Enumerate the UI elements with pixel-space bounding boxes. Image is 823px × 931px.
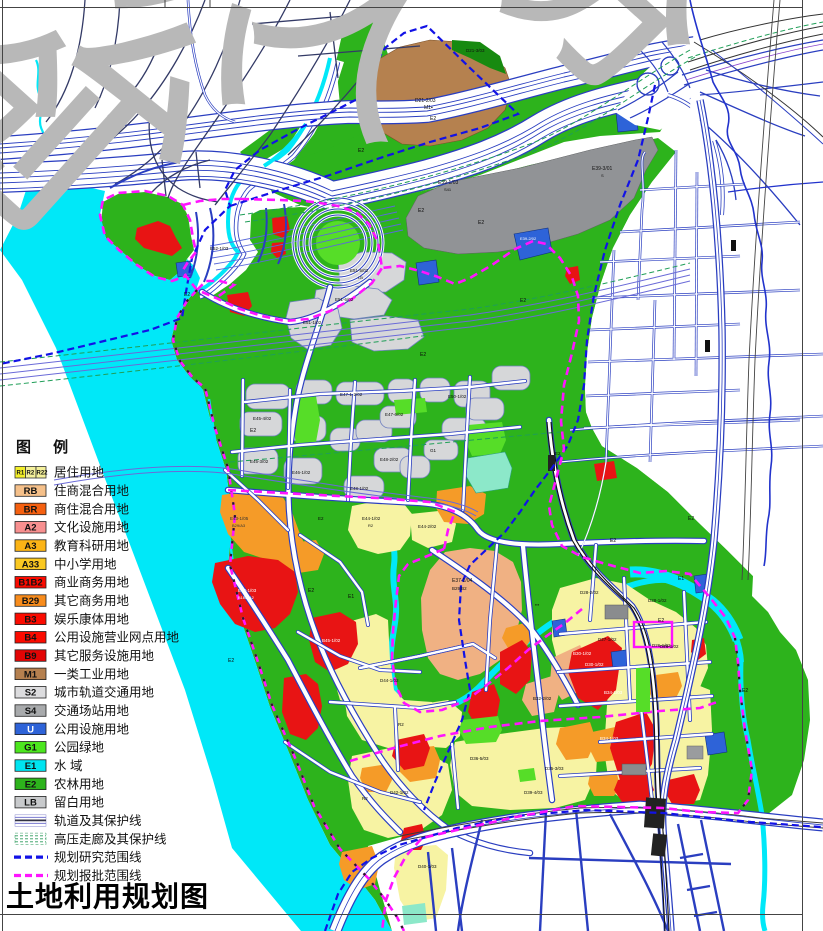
svg-text:E2: E2	[420, 352, 426, 358]
svg-text:S4: S4	[25, 706, 37, 717]
svg-text:教育科研用地: 教育科研用地	[54, 538, 130, 553]
svg-text:高压走廊及其保护线: 高压走廊及其保护线	[54, 831, 167, 846]
svg-text:E46-1/02: E46-1/02	[292, 470, 311, 475]
svg-text:M1: M1	[24, 669, 38, 680]
svg-text:RB: RB	[24, 486, 38, 497]
svg-text:B29|B2: B29|B2	[452, 586, 467, 591]
svg-text:E43-1/05: E43-1/05	[230, 516, 249, 521]
svg-text:E2: E2	[418, 208, 424, 214]
svg-text:E2: E2	[478, 220, 484, 226]
svg-text:E48-2/02: E48-2/02	[380, 457, 399, 462]
svg-text:D44-1/02: D44-1/02	[380, 678, 399, 683]
svg-text:R2: R2	[27, 471, 35, 477]
svg-text:D30-1/02: D30-1/02	[585, 662, 604, 667]
svg-text:居住用地: 居住用地	[54, 466, 105, 480]
svg-text:E52-1/03: E52-1/03	[210, 246, 229, 251]
svg-text:M1▪: M1▪	[424, 105, 433, 111]
svg-text:G1: G1	[24, 743, 37, 754]
svg-text:A2: A2	[24, 523, 36, 534]
svg-text:城市轨道交通用地: 城市轨道交通用地	[54, 685, 155, 700]
svg-text:E1: E1	[348, 594, 354, 600]
svg-text:E2: E2	[688, 516, 694, 522]
svg-text:图 例: 图 例	[16, 438, 77, 456]
svg-text:E44-1/02: E44-1/02	[362, 516, 381, 521]
svg-text:E2: E2	[555, 451, 561, 456]
svg-text:A3: A3	[24, 541, 36, 552]
svg-text:E51-6/02: E51-6/02	[335, 297, 354, 302]
svg-text:D28-2/02: D28-2/02	[580, 590, 599, 595]
svg-text:U: U	[27, 724, 34, 735]
svg-text:D40-1/03: D40-1/03	[418, 864, 437, 869]
svg-text:E47-1-2/02: E47-1-2/02	[340, 392, 363, 397]
svg-text:E48-1/02: E48-1/02	[350, 486, 369, 491]
svg-text:B29/A3: B29/A3	[232, 523, 246, 528]
svg-text:D39-4/03: D39-4/03	[524, 790, 543, 795]
svg-text:公用设施营业网点用地: 公用设施营业网点用地	[54, 630, 180, 645]
svg-text:一类工业用地: 一类工业用地	[54, 667, 130, 681]
svg-text:D21-3/03: D21-3/03	[466, 48, 485, 53]
svg-text:S41: S41	[444, 187, 452, 192]
svg-text:水 域: 水 域	[54, 759, 82, 773]
svg-text:E2: E2	[318, 516, 324, 521]
svg-text:文化设施用地: 文化设施用地	[54, 520, 130, 535]
svg-text:住商混合用地: 住商混合用地	[54, 483, 130, 498]
svg-text:B30-1/02: B30-1/02	[573, 651, 592, 656]
svg-text:S: S	[601, 173, 604, 178]
svg-text:R1: R1	[17, 471, 25, 477]
svg-text:E2: E2	[184, 292, 190, 298]
svg-text:E2: E2	[520, 298, 526, 304]
svg-text:D21-2/03: D21-2/03	[415, 98, 436, 104]
svg-text:E39-1/03: E39-1/03	[438, 180, 459, 186]
svg-text:R22: R22	[37, 471, 49, 477]
svg-text:公园绿地: 公园绿地	[54, 740, 105, 755]
svg-text:D27-1/02: D27-1/02	[598, 637, 617, 642]
svg-text:E1: E1	[678, 576, 684, 582]
svg-text:E45-4/02: E45-4/02	[253, 416, 272, 421]
svg-text:E50-1/02: E50-1/02	[448, 394, 467, 399]
svg-text:E2: E2	[308, 588, 314, 594]
svg-text:D42-1/02: D42-1/02	[390, 790, 409, 795]
svg-text:BR: BR	[24, 504, 38, 515]
svg-text:其它商务用地: 其它商务用地	[54, 593, 130, 608]
svg-text:留白用地: 留白用地	[54, 795, 105, 810]
svg-text:土地利用规划图: 土地利用规划图	[6, 881, 209, 912]
svg-text:E51-5/02: E51-5/02	[350, 268, 369, 273]
svg-text:LB: LB	[24, 798, 37, 809]
svg-text:E2: E2	[742, 688, 748, 694]
svg-text:交通场站用地: 交通场站用地	[54, 703, 130, 718]
svg-text:B9: B9	[24, 651, 36, 662]
svg-text:B29: B29	[22, 596, 39, 607]
svg-text:B32-2/02: B32-2/02	[533, 696, 552, 701]
svg-text:E2: E2	[228, 658, 234, 664]
svg-text:E2: E2	[610, 538, 616, 544]
svg-text:A33: A33	[22, 559, 39, 570]
svg-text:E2: E2	[358, 148, 364, 154]
svg-text:轨道及其保护线: 轨道及其保护线	[54, 814, 142, 828]
svg-text:D36-5/03: D36-5/03	[470, 756, 489, 761]
svg-text:R2: R2	[368, 523, 374, 528]
svg-text:R2: R2	[362, 796, 368, 801]
svg-text:E37-1/04: E37-1/04	[452, 578, 473, 584]
svg-text:娱乐康体用地: 娱乐康体用地	[54, 611, 130, 626]
svg-text:E39-3/01: E39-3/01	[592, 166, 613, 172]
svg-text:B34-1/03: B34-1/03	[600, 736, 619, 741]
svg-text:R2: R2	[398, 722, 404, 727]
svg-text:B3: B3	[24, 614, 36, 625]
svg-text:S2: S2	[25, 688, 37, 699]
svg-text:商业商务用地: 商业商务用地	[54, 575, 130, 590]
svg-text:▪▪▪: ▪▪▪	[535, 602, 540, 607]
svg-text:E44-2/02: E44-2/02	[418, 524, 437, 529]
svg-text:D26-1/02: D26-1/02	[660, 644, 679, 649]
svg-text:公用设施用地: 公用设施用地	[54, 721, 130, 736]
svg-text:规划研究范围线: 规划研究范围线	[54, 850, 142, 865]
svg-text:E2: E2	[430, 116, 436, 122]
svg-text:G1: G1	[430, 448, 437, 453]
svg-text:B34-1/03: B34-1/03	[604, 690, 623, 695]
svg-text:农林用地: 农林用地	[54, 777, 105, 791]
svg-text:B4: B4	[24, 633, 37, 644]
svg-text:B1B2/A2: B1B2/A2	[238, 595, 255, 600]
svg-text:E2: E2	[25, 779, 37, 790]
svg-text:B1B2: B1B2	[18, 578, 42, 589]
svg-text:其它服务设施用地: 其它服务设施用地	[54, 648, 155, 663]
svg-text:E43-1/03: E43-1/03	[238, 588, 257, 593]
svg-text:E51-1/02: E51-1/02	[303, 320, 322, 325]
svg-text:E2: E2	[658, 618, 664, 624]
svg-text:E2: E2	[250, 428, 256, 434]
svg-text:E45-3/02: E45-3/02	[250, 459, 269, 464]
svg-text:E1: E1	[25, 761, 37, 772]
svg-text:D28-1/02: D28-1/02	[648, 598, 667, 603]
svg-text:E39-2/02: E39-2/02	[520, 236, 537, 241]
svg-text:LB: LB	[358, 275, 363, 280]
svg-text:E47-6/02: E47-6/02	[385, 412, 404, 417]
svg-text:B45-1/02: B45-1/02	[322, 638, 341, 643]
svg-text:商住混合用地: 商住混合用地	[54, 501, 130, 516]
svg-text:D35-3/03: D35-3/03	[545, 766, 564, 771]
svg-text:中小学用地: 中小学用地	[54, 556, 117, 571]
